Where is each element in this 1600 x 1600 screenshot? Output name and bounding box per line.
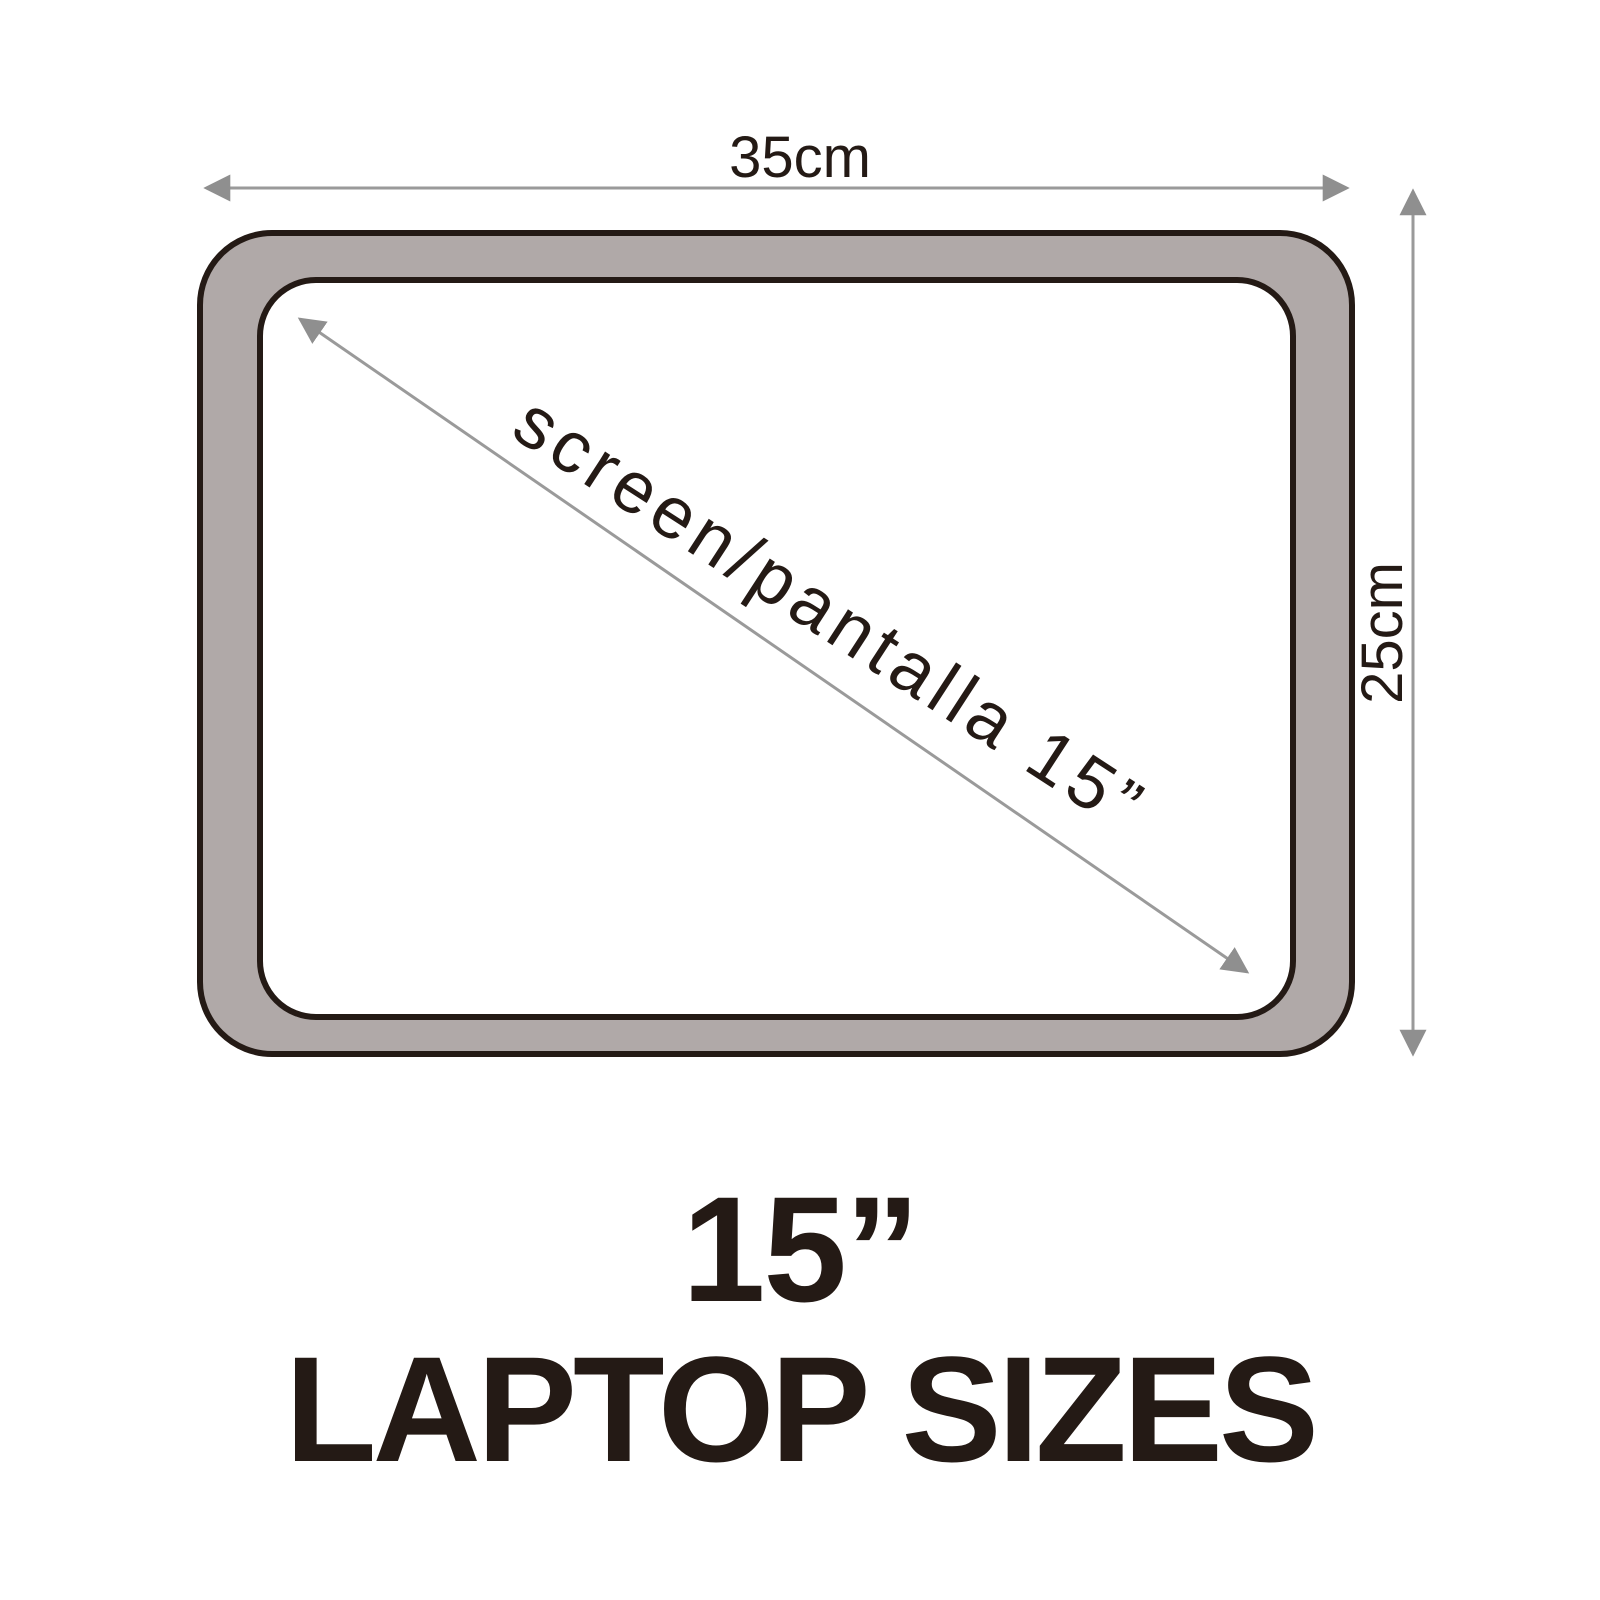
height-dimension-label: 25cm (1350, 433, 1416, 833)
size-heading: 15” (300, 1174, 1300, 1324)
width-dimension-label: 35cm (600, 125, 1000, 191)
laptop-size-diagram: 35cm 25cm screen/pantalla 15” 15” LAPTOP… (0, 0, 1600, 1600)
caption-heading: LAPTOP SIZES (100, 1334, 1500, 1484)
